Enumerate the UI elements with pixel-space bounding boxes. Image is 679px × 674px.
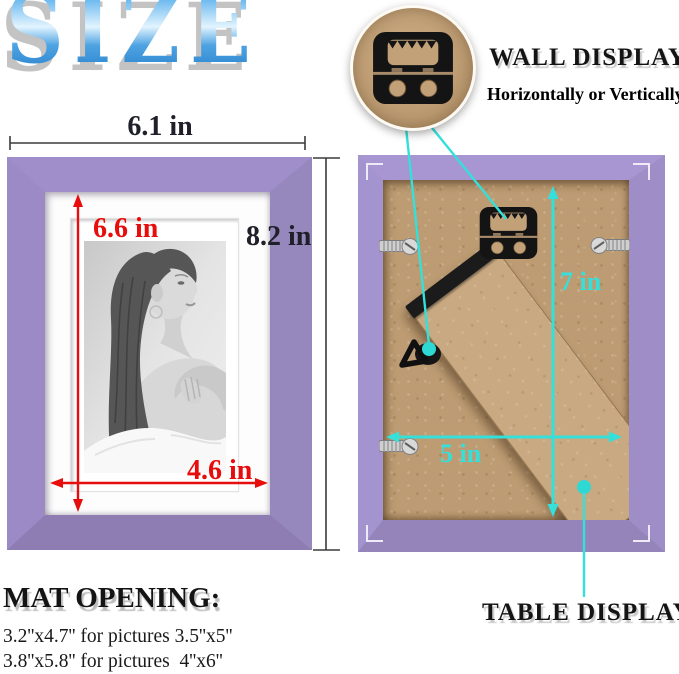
mat-opening-bevel xyxy=(70,218,239,492)
mat-opening-line-2: 3.8''x5.8'' for pictures 4''x6'' xyxy=(3,651,223,673)
page-title-text: SIZE xyxy=(6,0,261,85)
turn-button-clip-icon xyxy=(590,235,630,255)
sawtooth-hanger-icon xyxy=(479,206,538,260)
mat-opening-line-1: 3.2''x4.7'' for pictures 3.5''x5'' xyxy=(3,626,233,648)
product-size-infographic: SIZE SIZE xyxy=(0,0,679,674)
mat-opening-height-dimension: 6.6 in xyxy=(93,213,158,245)
wall-display-title: WALL DISPLAY xyxy=(489,44,679,72)
corner-bracket-icon xyxy=(366,163,383,180)
turn-button-clip-icon xyxy=(379,236,419,256)
mat-opening-heading: MAT OPENING: xyxy=(3,582,220,615)
back-width-dimension: 5 in xyxy=(440,439,481,469)
sawtooth-hanger-icon xyxy=(372,31,454,105)
corner-bracket-icon xyxy=(633,525,650,542)
wall-display-subtitle: Horizontally or Vertically xyxy=(487,84,679,105)
front-height-dimension: 8.2 in xyxy=(246,221,311,253)
turn-button-clip-icon xyxy=(379,436,419,456)
table-display-title: TABLE DISPLAY xyxy=(482,599,679,627)
corner-bracket-icon xyxy=(366,525,383,542)
page-title: SIZE SIZE xyxy=(6,0,261,77)
corner-bracket-icon xyxy=(633,163,650,180)
back-height-dimension: 7 in xyxy=(560,267,601,297)
front-width-dimension: 6.1 in xyxy=(105,111,215,143)
portrait-photo xyxy=(75,223,234,487)
hanger-magnifier-callout xyxy=(350,5,476,131)
frame-front-view xyxy=(7,157,312,550)
d-ring-hanger-icon xyxy=(397,335,443,369)
mat-opening-width-dimension: 4.6 in xyxy=(187,455,252,487)
